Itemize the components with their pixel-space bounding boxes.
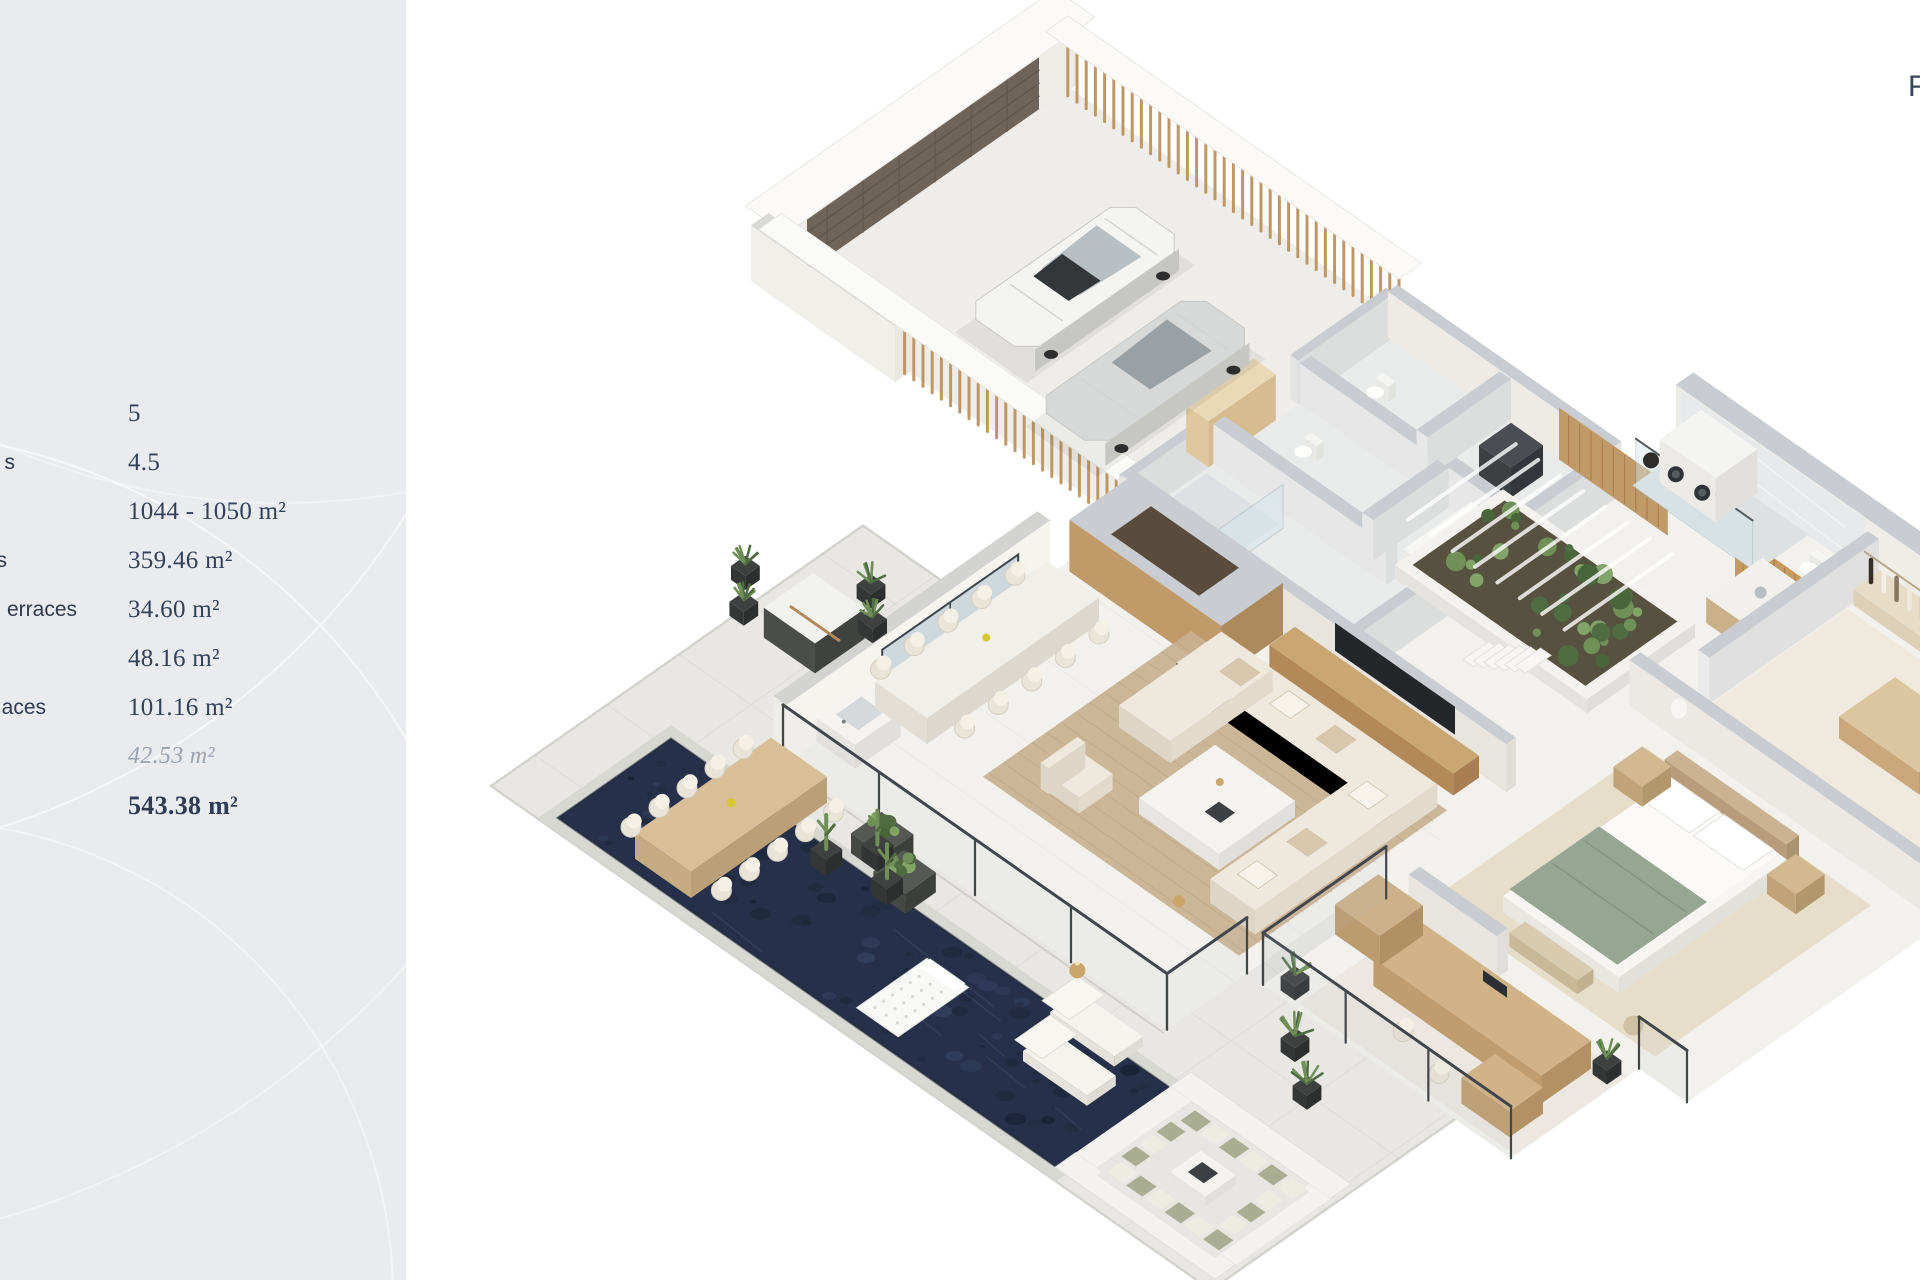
spec-row-plot: 1044 - 1050 m² [0, 487, 406, 536]
property-specs-sidebar: 5 s 4.5 1044 - 1050 m² s 359.46 m² errac… [0, 0, 406, 1280]
spec-value: 543.38 m² [128, 791, 238, 821]
spec-label-fragment: s [0, 549, 7, 573]
clipped-corner-label: F [1908, 70, 1920, 106]
spec-value: 1044 - 1050 m² [128, 498, 286, 526]
spec-value: 101.16 m² [128, 694, 233, 722]
spec-row-terraces: aces 101.16 m² [0, 683, 406, 732]
spec-label-fragment: s [5, 451, 16, 475]
spec-row-covered-terraces: erraces 34.60 m² [0, 585, 406, 634]
spec-row-garage: 48.16 m² [0, 634, 406, 683]
spec-value: 42.53 m² [128, 743, 215, 770]
spec-label-fragment: erraces [7, 598, 77, 622]
spec-label-fragment: aces [2, 696, 46, 720]
spec-row-total: 543.38 m² [0, 781, 406, 830]
spec-row-interior: s 359.46 m² [0, 536, 406, 585]
spec-value: 34.60 m² [128, 596, 220, 624]
spec-value: 359.46 m² [128, 547, 233, 575]
spec-value: 48.16 m² [128, 645, 220, 673]
spec-row-pool: 42.53 m² [0, 732, 406, 781]
spec-value: 4.5 [128, 449, 160, 477]
spec-row-bathrooms: s 4.5 [0, 438, 406, 487]
spec-value: 5 [128, 400, 141, 428]
specs-table: 5 s 4.5 1044 - 1050 m² s 359.46 m² errac… [0, 389, 406, 830]
spec-row-bedrooms: 5 [0, 389, 406, 438]
